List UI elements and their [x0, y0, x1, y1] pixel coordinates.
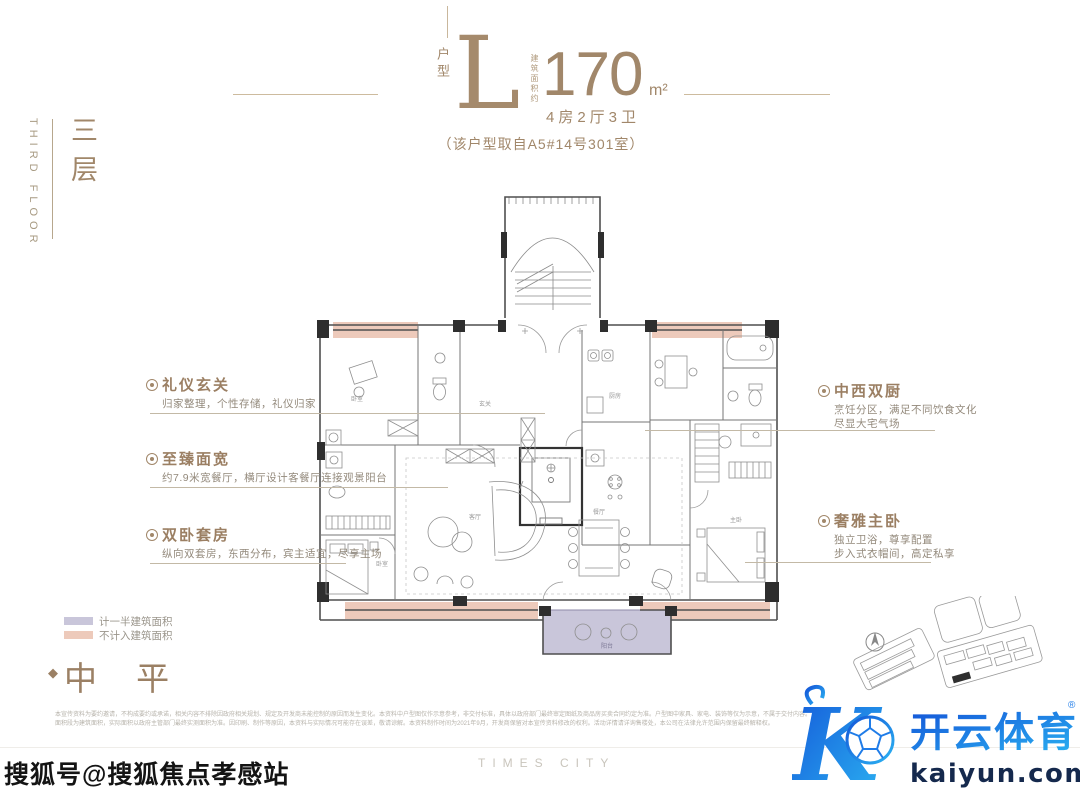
feature-title-suites: 双卧套房: [162, 524, 230, 545]
unit-type-label: 户型: [433, 47, 452, 81]
room-label: 卧室: [376, 560, 388, 568]
excluded-area-strips: [333, 322, 770, 619]
soccer-ball-icon: [847, 717, 893, 763]
legend-label-excluded-area: 不计入建筑面积: [99, 628, 173, 643]
header-divider-right: [684, 94, 830, 95]
layout-summary: 4房2厅3卫: [546, 106, 640, 127]
room-label: 卧室: [351, 395, 363, 403]
sidebar-divider: [52, 119, 53, 239]
legend-swatch-excluded-area: [64, 631, 93, 639]
feature-title-width: 至臻面宽: [162, 448, 230, 469]
feature-icon: [818, 385, 830, 397]
floorplan-promo-page: 户型 L 建筑面积约 170 m² 4房2厅3卫 （该户型取自A5#14号301…: [0, 0, 1080, 796]
area-value: 170: [542, 44, 642, 106]
interior-walls: [320, 325, 778, 600]
logo-name-cn: 开云体育: [910, 710, 1078, 756]
site-buildings-left: [853, 627, 936, 691]
feature-title-kitchen: 中西双厨: [834, 380, 902, 401]
callout-line-suites: [150, 563, 346, 564]
registered-mark: ®: [1068, 700, 1076, 711]
feature-desc-width: 约7.9米宽餐厅，横厅设计客餐厅连接观景阳台: [162, 470, 387, 485]
logo-domain: kaiyun.com: [910, 759, 1080, 789]
legend-swatch-half-area: [64, 617, 93, 625]
feature-desc-master-2: 步入式衣帽间，高定私享: [834, 546, 955, 561]
area-prefix: 建筑面积约: [529, 54, 540, 104]
furniture: [326, 336, 773, 640]
room-label: 餐厅: [593, 508, 605, 516]
site-highlight-building: [952, 672, 971, 684]
disclaimer-line-1: 本宣传资料为要约邀请，不构成要约或承诺，相关内容不排除因政府相关规划、规定及开发…: [55, 711, 915, 720]
legend-label-half-area: 计一半建筑面积: [99, 614, 173, 629]
room-label: 主卧: [730, 516, 742, 524]
feature-desc-master-1: 独立卫浴，尊享配置: [834, 532, 933, 547]
feature-icon: [146, 379, 158, 391]
stairwell: [509, 197, 594, 310]
feature-icon: [818, 515, 830, 527]
section-title: 中 平: [64, 652, 184, 700]
callout-line-entry: [150, 413, 545, 414]
feature-desc-kitchen-2: 尽显大宅气场: [834, 416, 900, 431]
feature-icon: [146, 529, 158, 541]
floor-label-cn: 三层: [63, 116, 102, 194]
compass-icon: [866, 632, 884, 651]
area-unit: m²: [649, 82, 668, 100]
feature-title-master: 奢雅主卧: [834, 510, 902, 531]
room-label: 玄关: [479, 400, 491, 408]
brand-footer: TIMES CITY: [478, 756, 615, 770]
header-divider-left: [233, 94, 378, 95]
door-swings: [379, 325, 708, 600]
feature-desc-entry: 归家整理，个性存储，礼仪归家: [162, 396, 316, 411]
header-tick-line: [447, 6, 448, 38]
feature-title-entry: 礼仪玄关: [162, 374, 230, 395]
feature-desc-suites: 纵向双套房，东西分布，宾主适宜，尽享主场: [162, 546, 382, 561]
room-label-terrace: 阳台: [601, 642, 613, 650]
source-note: （该户型取自A5#14号301室）: [425, 134, 657, 154]
kaiyun-logo[interactable]: K 开云体育 ® kaiyun.com: [792, 684, 1080, 796]
room-label: 客厅: [469, 513, 481, 521]
elevator-core: [520, 448, 582, 525]
outer-walls: [320, 197, 777, 654]
callout-line-width: [150, 487, 448, 488]
watermark-sohu[interactable]: 搜狐号@搜狐焦点孝感站: [4, 755, 289, 791]
site-buildings: [924, 596, 1043, 688]
floor-label-en: THIRD FLOOR: [27, 118, 39, 248]
feature-desc-kitchen-1: 烹饪分区，满足不同饮食文化: [834, 402, 977, 417]
diamond-bullet-icon: ◆: [48, 665, 58, 681]
callout-line-master: [745, 562, 931, 563]
unit-type-letter: L: [454, 24, 520, 124]
feature-icon: [146, 453, 158, 465]
disclaimer-text: 本宣传资料为要约邀请，不构成要约或承诺，相关内容不排除因政府相关规划、规定及开发…: [55, 711, 915, 729]
disclaimer-line-2: 面积段为建筑面积，实际面积以政府主管部门最终实测面积为准。因印刷、制作等原因，本…: [55, 720, 915, 729]
floorplan-drawing: 卧室 玄关 厨房 客厅 餐厅 主卧 卧室 阳台: [293, 192, 793, 662]
room-label: 厨房: [609, 392, 621, 400]
